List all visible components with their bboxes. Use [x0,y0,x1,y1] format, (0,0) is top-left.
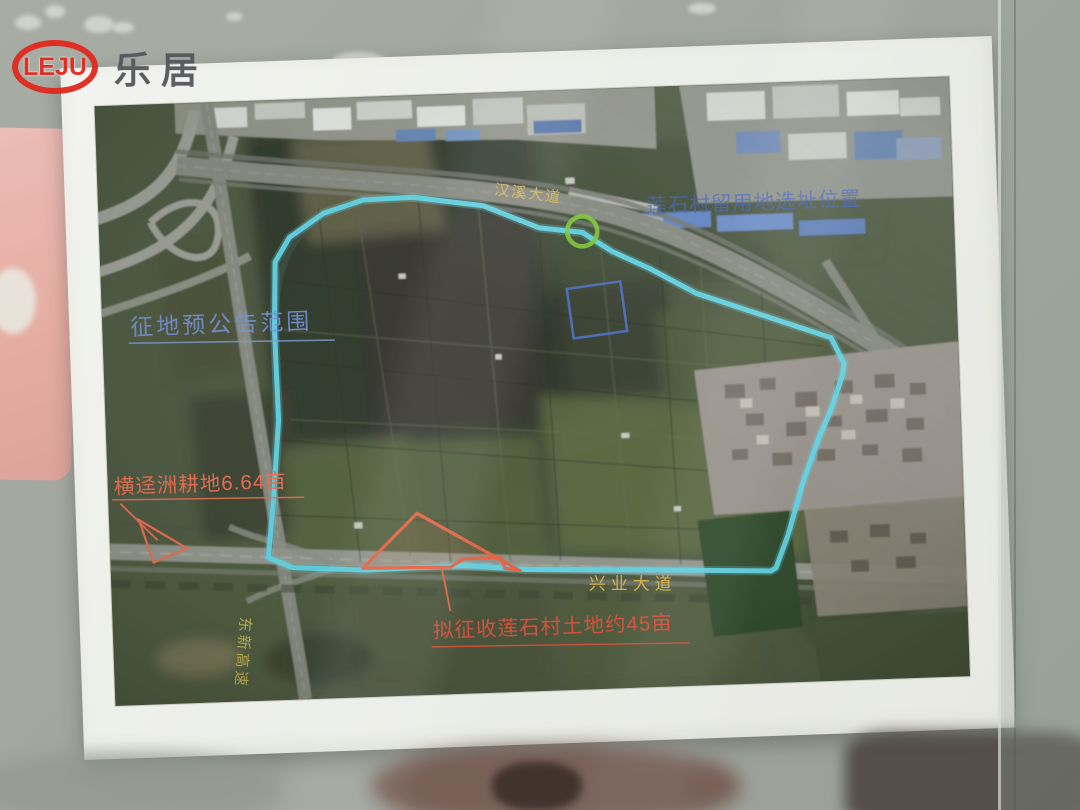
floor-reflection [0,752,280,810]
satellite-map-canvas: 征地预公告范围 莲石村留用地选址位置 横迳洲耕地6.64亩 拟征收莲石村土地约4… [95,76,970,705]
leju-logo-oval: LEJU [12,40,98,94]
paint-splotch [226,12,243,21]
dark-reflection [492,762,582,810]
glass-frame-line [1014,0,1016,810]
paint-splotch [15,15,41,30]
leju-logo-text: 乐居 [114,40,208,94]
paint-splotch [45,5,65,18]
paint-splotch [84,16,114,33]
leju-logo-mark: LEJU [23,53,87,82]
map-poster: 征地预公告范围 莲石村留用地选址位置 横迳洲耕地6.64亩 拟征收莲石村土地约4… [60,36,1016,760]
glass-pane [998,0,1080,810]
satellite-map: 征地预公告范围 莲石村留用地选址位置 横迳洲耕地6.64亩 拟征收莲石村土地约4… [95,76,970,705]
sheen-overlay [95,76,970,705]
photo-background: 征地预公告范围 莲石村留用地选址位置 横迳洲耕地6.64亩 拟征收莲石村土地约4… [0,0,1080,810]
paint-splotch [688,3,716,14]
paint-splotch [112,22,134,33]
leju-logo: LEJU 乐居 [12,40,208,94]
